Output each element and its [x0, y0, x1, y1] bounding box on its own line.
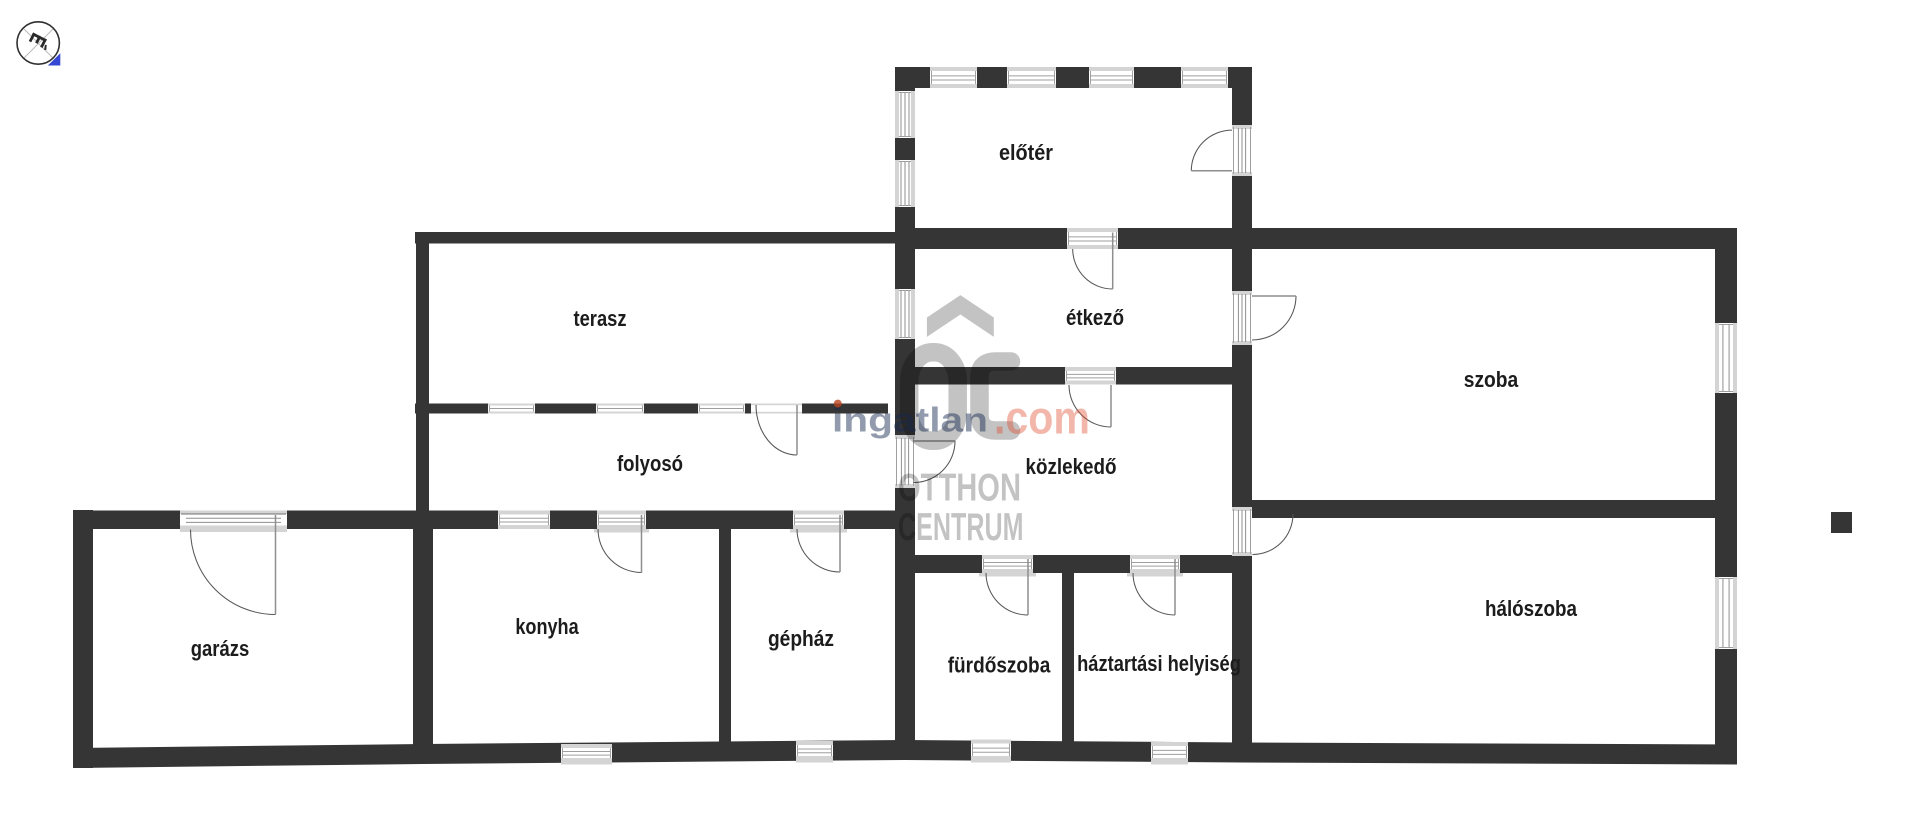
svg-text:konyha: konyha	[515, 614, 579, 639]
svg-text:gépház: gépház	[768, 626, 834, 651]
svg-text:fürdőszoba: fürdőszoba	[948, 653, 1051, 678]
svg-text:étkező: étkező	[1066, 305, 1124, 330]
svg-text:.com: .com	[994, 392, 1090, 444]
svg-text:folyosó: folyosó	[617, 451, 683, 476]
svg-text:előtér: előtér	[999, 140, 1053, 165]
svg-text:szoba: szoba	[1464, 367, 1519, 392]
svg-text:hálószoba: hálószoba	[1485, 596, 1578, 621]
svg-text:OTTHON: OTTHON	[898, 467, 1021, 510]
svg-text:közlekedő: közlekedő	[1026, 454, 1117, 479]
svg-text:ingatlan: ingatlan	[832, 402, 988, 440]
svg-text:háztartási helyiség: háztartási helyiség	[1077, 651, 1241, 676]
svg-text:CENTRUM: CENTRUM	[898, 506, 1024, 549]
svg-text:terasz: terasz	[574, 306, 627, 331]
svg-text:garázs: garázs	[191, 636, 250, 661]
